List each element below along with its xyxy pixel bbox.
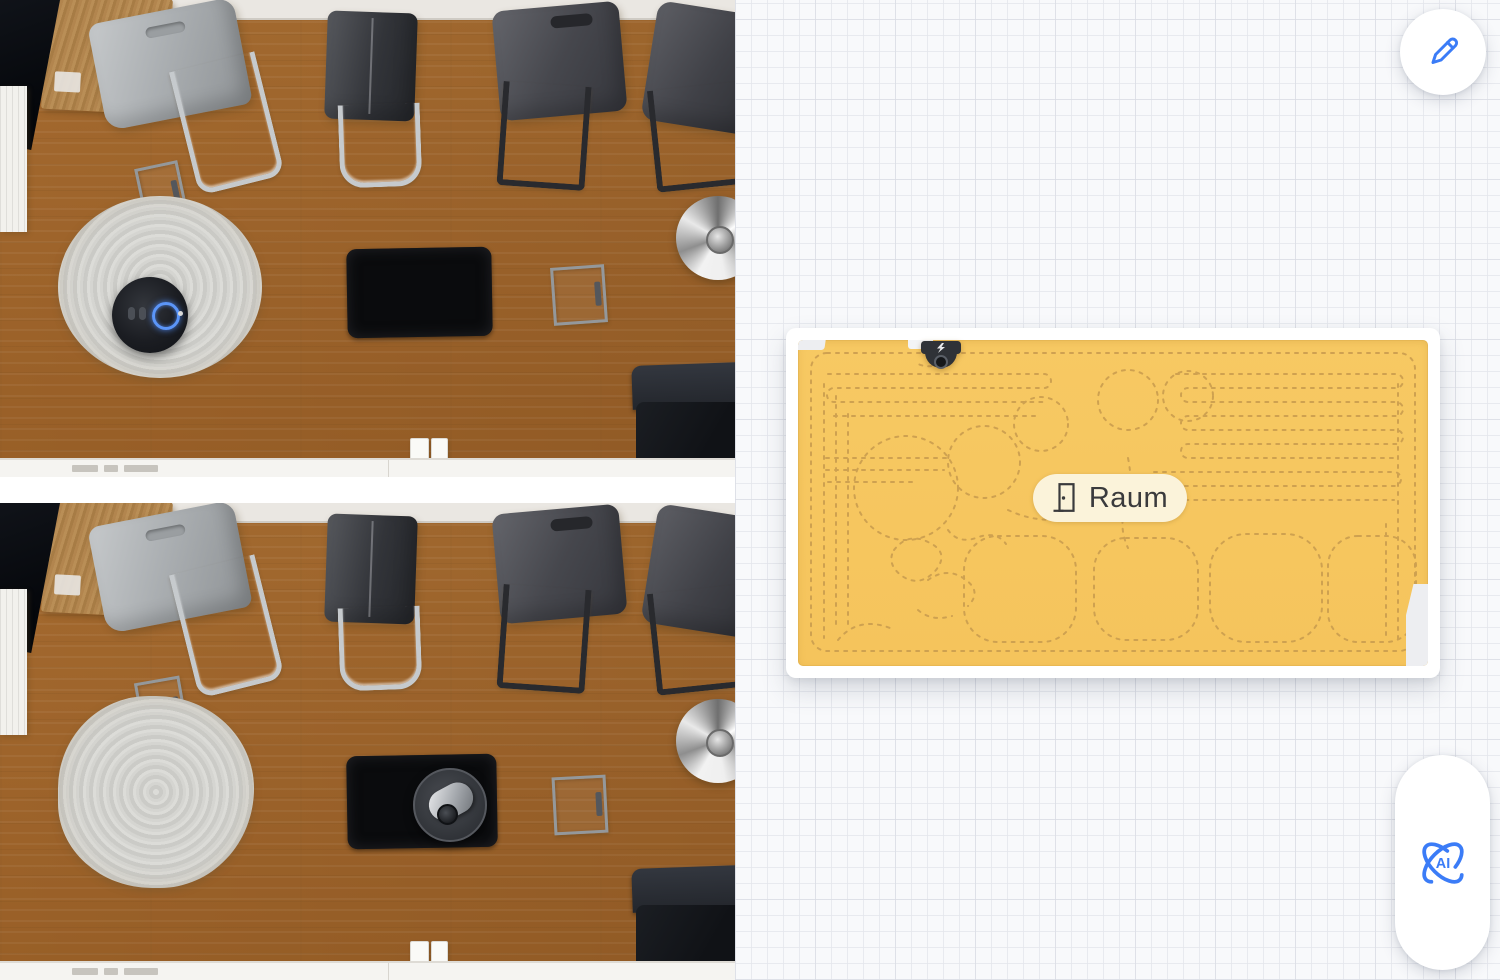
robot-button <box>178 311 183 316</box>
stool-pole <box>706 729 734 757</box>
chair-frame-4 <box>647 81 735 192</box>
robot-vacuum-blue-ring <box>112 277 188 353</box>
skirting-box <box>410 941 429 963</box>
skirting-box <box>410 438 429 460</box>
ledge-label <box>124 968 158 975</box>
ledge-label <box>124 465 158 472</box>
edit-map-button[interactable] <box>1400 9 1486 95</box>
skirting-box <box>431 941 448 963</box>
ledge-label <box>72 465 98 472</box>
ledge-seam <box>388 460 389 477</box>
socket-handle <box>594 281 602 305</box>
ai-assistant-button[interactable]: AI <box>1395 755 1490 970</box>
ai-swirl-icon: AI <box>1412 832 1474 894</box>
chair-frame-2 <box>338 103 423 189</box>
screen: Raum <box>0 0 1500 980</box>
map-cutout <box>798 340 826 350</box>
bottom-ledge <box>0 458 735 477</box>
ledge-label <box>104 968 118 975</box>
chair-seam <box>368 18 373 114</box>
camera-photo-bottom <box>0 503 735 980</box>
robot-led-ring <box>152 302 180 330</box>
chair-handle <box>550 13 593 29</box>
ai-badge-text: AI <box>1435 856 1449 872</box>
robot-vacuum-camera-module <box>413 768 487 842</box>
socket-handle <box>595 792 602 816</box>
pencil-icon <box>1421 30 1465 74</box>
map-panel: Raum <box>735 0 1500 980</box>
chair-frame-2 <box>338 606 423 692</box>
armchair-cushion <box>636 905 735 967</box>
room-label-pill[interactable]: Raum <box>1033 474 1187 522</box>
room-map-canvas[interactable]: Raum <box>798 340 1428 666</box>
stool-pole <box>706 226 734 254</box>
skirting-box <box>431 438 448 460</box>
camera-photo-top <box>0 0 735 477</box>
door-icon <box>1052 482 1078 514</box>
robot-sensor <box>139 307 146 320</box>
robot-camera-lens <box>437 804 458 825</box>
room-label: Raum <box>1089 482 1168 515</box>
chair-handle <box>145 524 186 542</box>
photo-divider <box>0 477 735 503</box>
radiator <box>0 86 27 232</box>
radiator <box>0 589 27 735</box>
chair-handle <box>145 21 186 39</box>
black-mat <box>346 247 493 339</box>
black-armchair <box>632 364 735 464</box>
ledge-seam <box>388 963 389 980</box>
bottom-ledge <box>0 961 735 980</box>
round-rug <box>58 696 254 888</box>
ledge-label <box>72 968 98 975</box>
robot-sensor <box>128 307 135 320</box>
floor-socket-2 <box>552 775 609 836</box>
chair-frame-3 <box>496 81 591 191</box>
armchair-cushion <box>636 402 735 464</box>
chair-frame-4 <box>647 584 735 695</box>
chair-frame-3 <box>496 584 591 694</box>
charging-dock-icon <box>918 334 964 384</box>
black-armchair <box>632 867 735 967</box>
ledge-label <box>104 465 118 472</box>
floor-socket-2 <box>550 264 608 326</box>
chair-handle <box>550 516 593 532</box>
room-map-card[interactable]: Raum <box>786 328 1440 678</box>
chair-seam <box>368 521 373 617</box>
camera-photos-panel <box>0 0 735 980</box>
